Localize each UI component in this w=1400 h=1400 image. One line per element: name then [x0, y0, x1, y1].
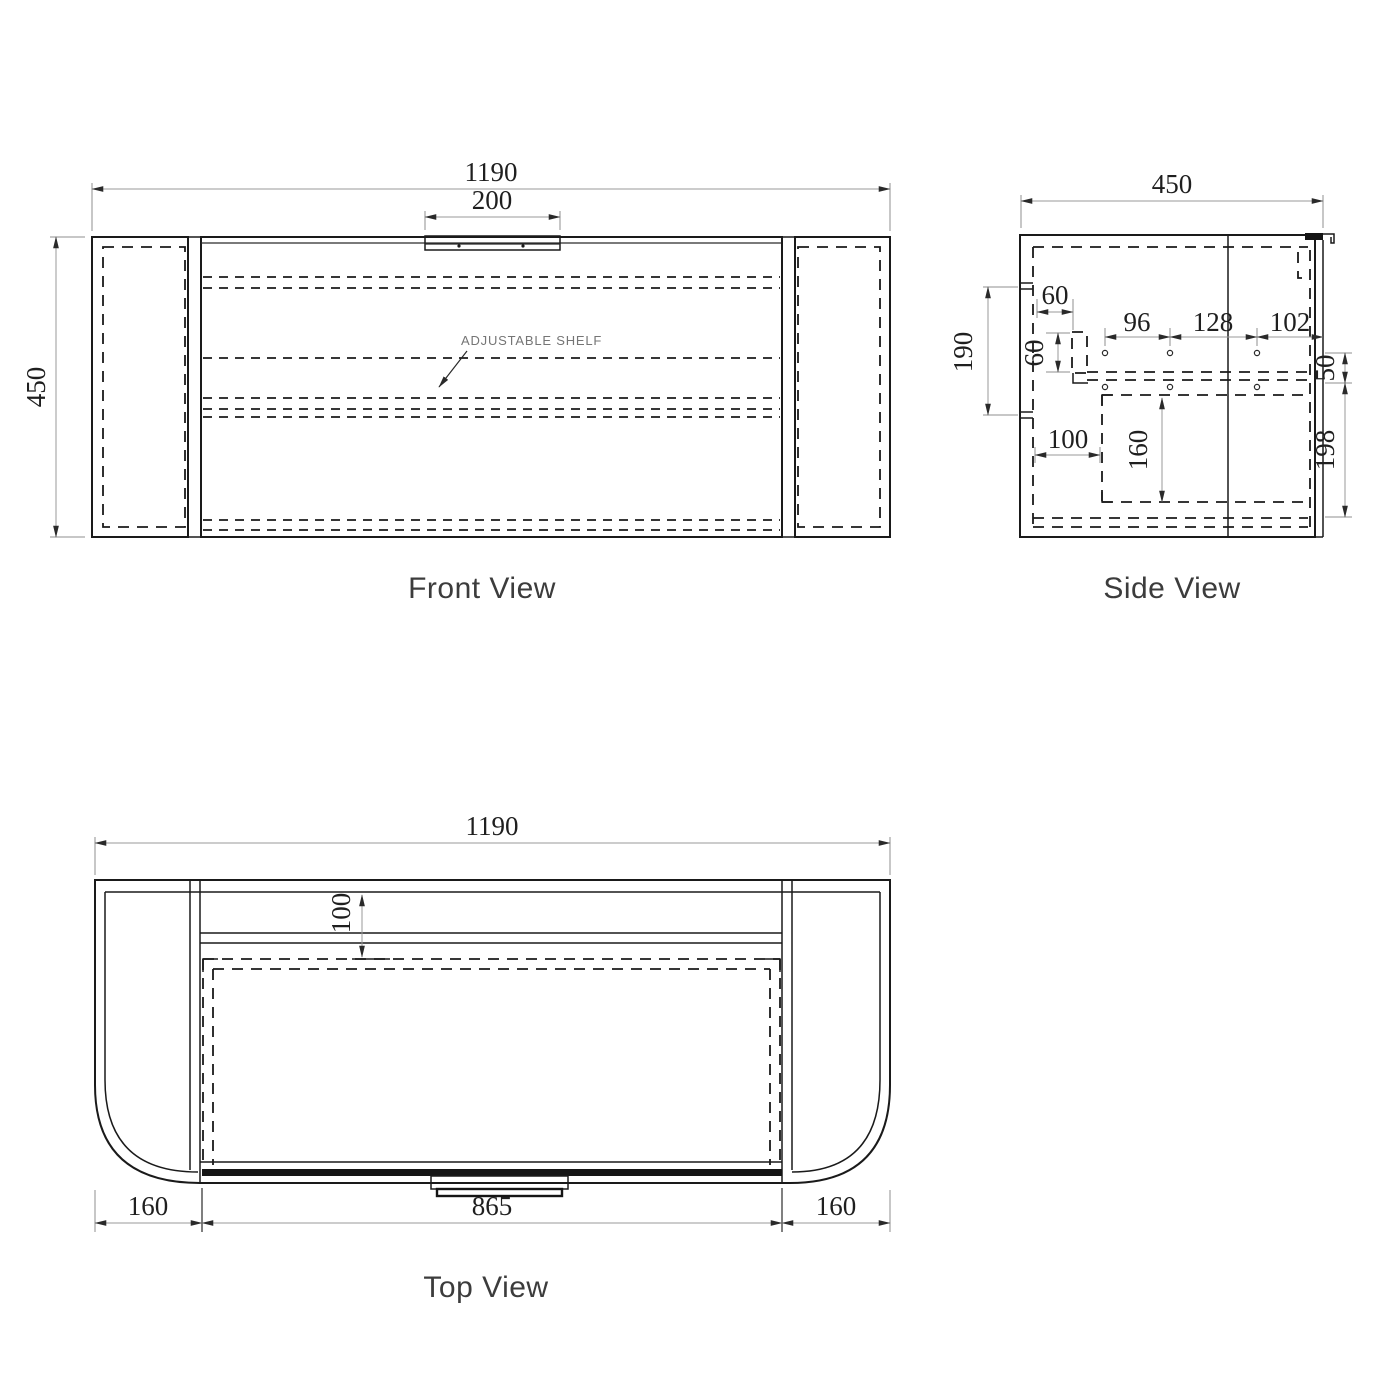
top-865-value: 865: [472, 1191, 513, 1221]
side-dim-198: 198: [1310, 383, 1352, 517]
top-dim-width: 1190: [95, 811, 890, 875]
side-160-value: 160: [1123, 430, 1153, 471]
side-dim-160: 160: [1123, 398, 1162, 502]
side-60h-value: 60: [1042, 280, 1069, 310]
top-width-value: 1190: [466, 811, 519, 841]
side-dim-190: 190: [948, 287, 1018, 415]
side-dim-60v: 60: [1019, 333, 1070, 372]
wall-hanger-hook: [1323, 234, 1334, 243]
side-dim-hole-pitch: 96 128 102: [1105, 307, 1323, 337]
top-100-value: 100: [326, 893, 356, 934]
front-dim-handle: 200: [425, 185, 560, 230]
top-front-edge: [200, 1162, 782, 1176]
front-shelf-lines: [203, 277, 780, 530]
side-198-value: 198: [1310, 430, 1340, 471]
top-hidden-box: [203, 959, 780, 1165]
front-left-joint: [188, 237, 201, 537]
front-right-end-panel: [795, 237, 890, 537]
side-dim-50: 50: [1310, 353, 1352, 383]
side-dim-100: 100: [1035, 424, 1100, 463]
side-128-value: 128: [1193, 307, 1234, 337]
front-height-value: 450: [21, 367, 51, 408]
top-dim-bottom: 160 865 160: [95, 1188, 890, 1232]
front-right-joint: [782, 237, 795, 537]
front-left-panel-hidden-edge: [103, 247, 185, 527]
front-carcass: [201, 237, 782, 537]
front-handle-width-value: 200: [472, 185, 513, 215]
top-view-label: Top View: [423, 1271, 548, 1304]
side-190-value: 190: [948, 332, 978, 373]
front-dim-height: 450: [21, 237, 85, 537]
side-100-value: 100: [1048, 424, 1089, 454]
side-50-value: 50: [1310, 355, 1340, 382]
side-102-value: 102: [1270, 307, 1311, 337]
side-hidden-outline: [1033, 247, 1308, 530]
front-right-panel-hidden-edge: [798, 247, 880, 527]
technical-drawing-sheet: ADJUSTABLE SHELF 1190 200 450 Front View: [0, 0, 1400, 1400]
front-width-value: 1190: [465, 157, 518, 187]
top-division-walls: [190, 880, 792, 1183]
side-96-value: 96: [1124, 307, 1151, 337]
vanity-drawing-svg: ADJUSTABLE SHELF 1190 200 450 Front View: [0, 0, 1400, 1400]
side-view: 450 190 60 60 96 128: [948, 169, 1352, 605]
top-view: 1190 100 160 865 160 Top View: [95, 811, 890, 1304]
top-right-inner-wall: [792, 892, 880, 1172]
side-depth-value: 450: [1152, 169, 1193, 199]
side-view-label: Side View: [1103, 572, 1240, 605]
shelf-leader-arrow: [439, 351, 467, 387]
top-back-rail: [200, 933, 782, 943]
front-view-label: Front View: [408, 572, 556, 605]
top-right-160-value: 160: [816, 1191, 857, 1221]
front-left-end-panel: [92, 237, 188, 537]
side-hinge-plate: [1072, 332, 1088, 383]
side-60v-value: 60: [1019, 340, 1049, 367]
front-view: ADJUSTABLE SHELF 1190 200 450 Front View: [21, 157, 890, 605]
top-left-inner-wall: [105, 892, 198, 1172]
side-dim-depth: 450: [1021, 169, 1323, 228]
side-dim-60h: 60: [1037, 280, 1073, 330]
top-dim-100: 100: [326, 893, 390, 959]
adjustable-shelf-note: ADJUSTABLE SHELF: [461, 333, 602, 348]
top-left-160-value: 160: [128, 1191, 169, 1221]
